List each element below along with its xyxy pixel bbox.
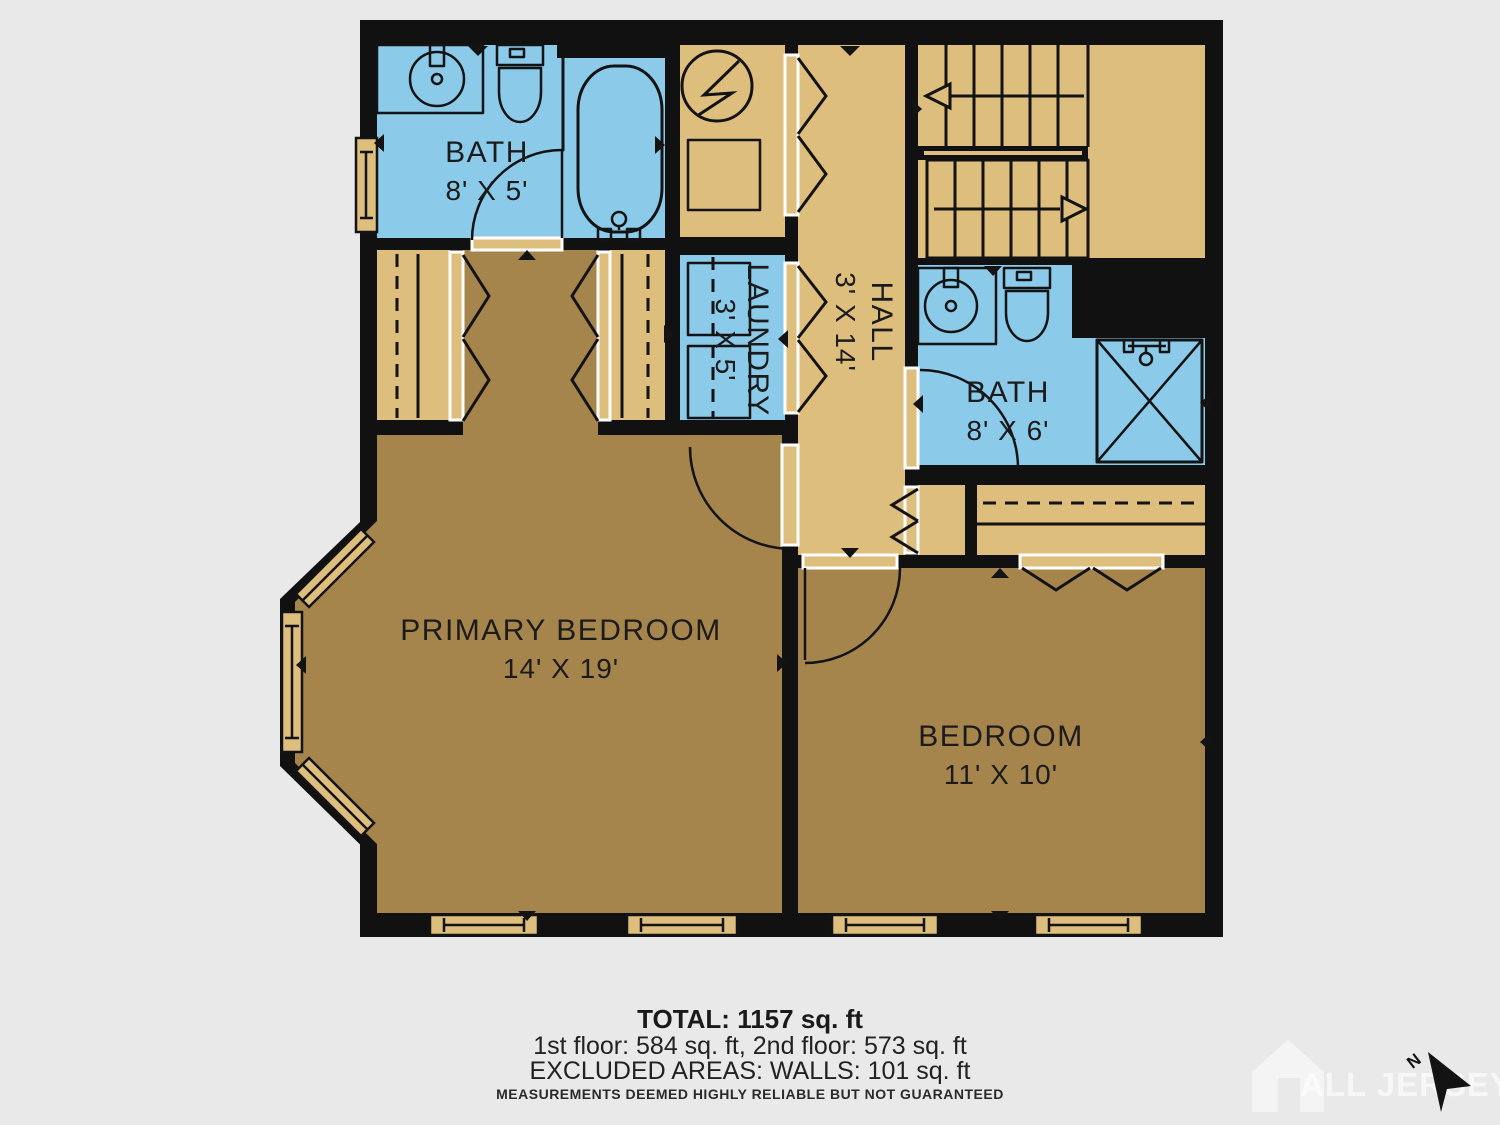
- total-area-text: TOTAL: 1157 sq. ft: [637, 1004, 863, 1034]
- hall-dims: 3' X 14': [830, 272, 861, 372]
- disclaimer-text: MEASUREMENTS DEEMED HIGHLY RELIABLE BUT …: [496, 1086, 1004, 1102]
- floor-plan-page: BATH 8' X 5' LAUNDRY 3' X 5' HALL 3' X 1…: [0, 0, 1500, 1125]
- window: [356, 138, 377, 232]
- closet-left-floor: [377, 250, 450, 420]
- hall-label: HALL: [865, 281, 898, 362]
- window: [282, 612, 302, 752]
- window: [832, 915, 938, 935]
- excluded-areas-text: EXCLUDED AREAS: WALLS: 101 sq. ft: [530, 1057, 971, 1085]
- bath-right-label: BATH: [966, 376, 1050, 409]
- bath-top-dims: 8' X 5': [445, 175, 528, 206]
- bath-top-label: BATH: [445, 136, 529, 169]
- linen-closet-floor: [918, 485, 965, 555]
- primary-bedroom-dims: 14' X 19': [503, 653, 619, 684]
- window: [1035, 915, 1142, 935]
- laundry-dims: 3' X 5': [710, 298, 741, 381]
- tub-nook-wall: [557, 20, 665, 58]
- bedroom-dims: 11' X 10': [944, 759, 1058, 790]
- footer: TOTAL: 1157 sq. ft 1st floor: 584 sq. ft…: [496, 1004, 1004, 1102]
- laundry-label: LAUNDRY: [741, 263, 774, 416]
- watermark-text: ALL JERSEY MLS: [1300, 1066, 1500, 1103]
- bedroom-closet-floor: [977, 485, 1205, 555]
- bath-chase-wall: [1072, 265, 1205, 338]
- window: [430, 915, 538, 935]
- watermark: ALL JERSEY MLS: [1252, 1040, 1500, 1112]
- bath-right-dims: 8' X 6': [966, 415, 1049, 446]
- floor-areas-text: 1st floor: 584 sq. ft, 2nd floor: 573 sq…: [533, 1032, 967, 1060]
- closet-right-floor: [610, 250, 665, 420]
- window: [627, 915, 737, 935]
- bedroom-label: BEDROOM: [918, 720, 1084, 753]
- primary-bedroom-label: PRIMARY BEDROOM: [400, 614, 721, 647]
- primary-passage-floor: [463, 250, 598, 440]
